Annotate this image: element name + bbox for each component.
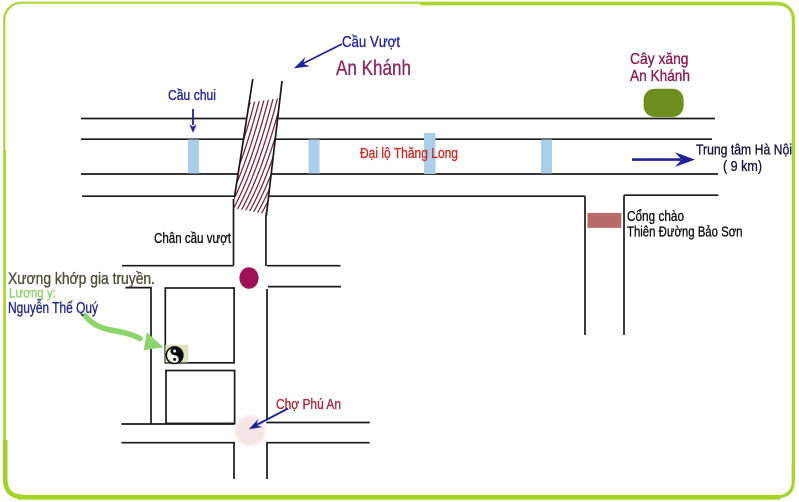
svg-text:Cây xăng: Cây xăng — [630, 51, 689, 68]
svg-text:Cầu chui: Cầu chui — [168, 87, 216, 104]
svg-text:Cổng chào: Cổng chào — [627, 208, 684, 225]
svg-text:Trung tâm Hà Nội: Trung tâm Hà Nội — [696, 142, 792, 159]
svg-text:An Khánh: An Khánh — [630, 68, 690, 85]
svg-text:Lương y:: Lương y: — [9, 286, 56, 301]
svg-text:Đại lộ Thăng Long: Đại lộ Thăng Long — [360, 146, 458, 162]
svg-text:( 9 km): ( 9 km) — [723, 158, 762, 175]
svg-text:Nguyễn Thế Quý: Nguyễn Thế Quý — [8, 300, 98, 317]
svg-text:Chợ Phú An: Chợ Phú An — [276, 397, 341, 413]
svg-text:Thiên Đường Bảo Sơn: Thiên Đường Bảo Sơn — [627, 224, 743, 241]
svg-text:Chân cầu vượt: Chân cầu vượt — [154, 231, 231, 247]
svg-text:An Khánh: An Khánh — [336, 56, 411, 80]
svg-text:Cầu Vượt: Cầu Vượt — [342, 34, 400, 51]
